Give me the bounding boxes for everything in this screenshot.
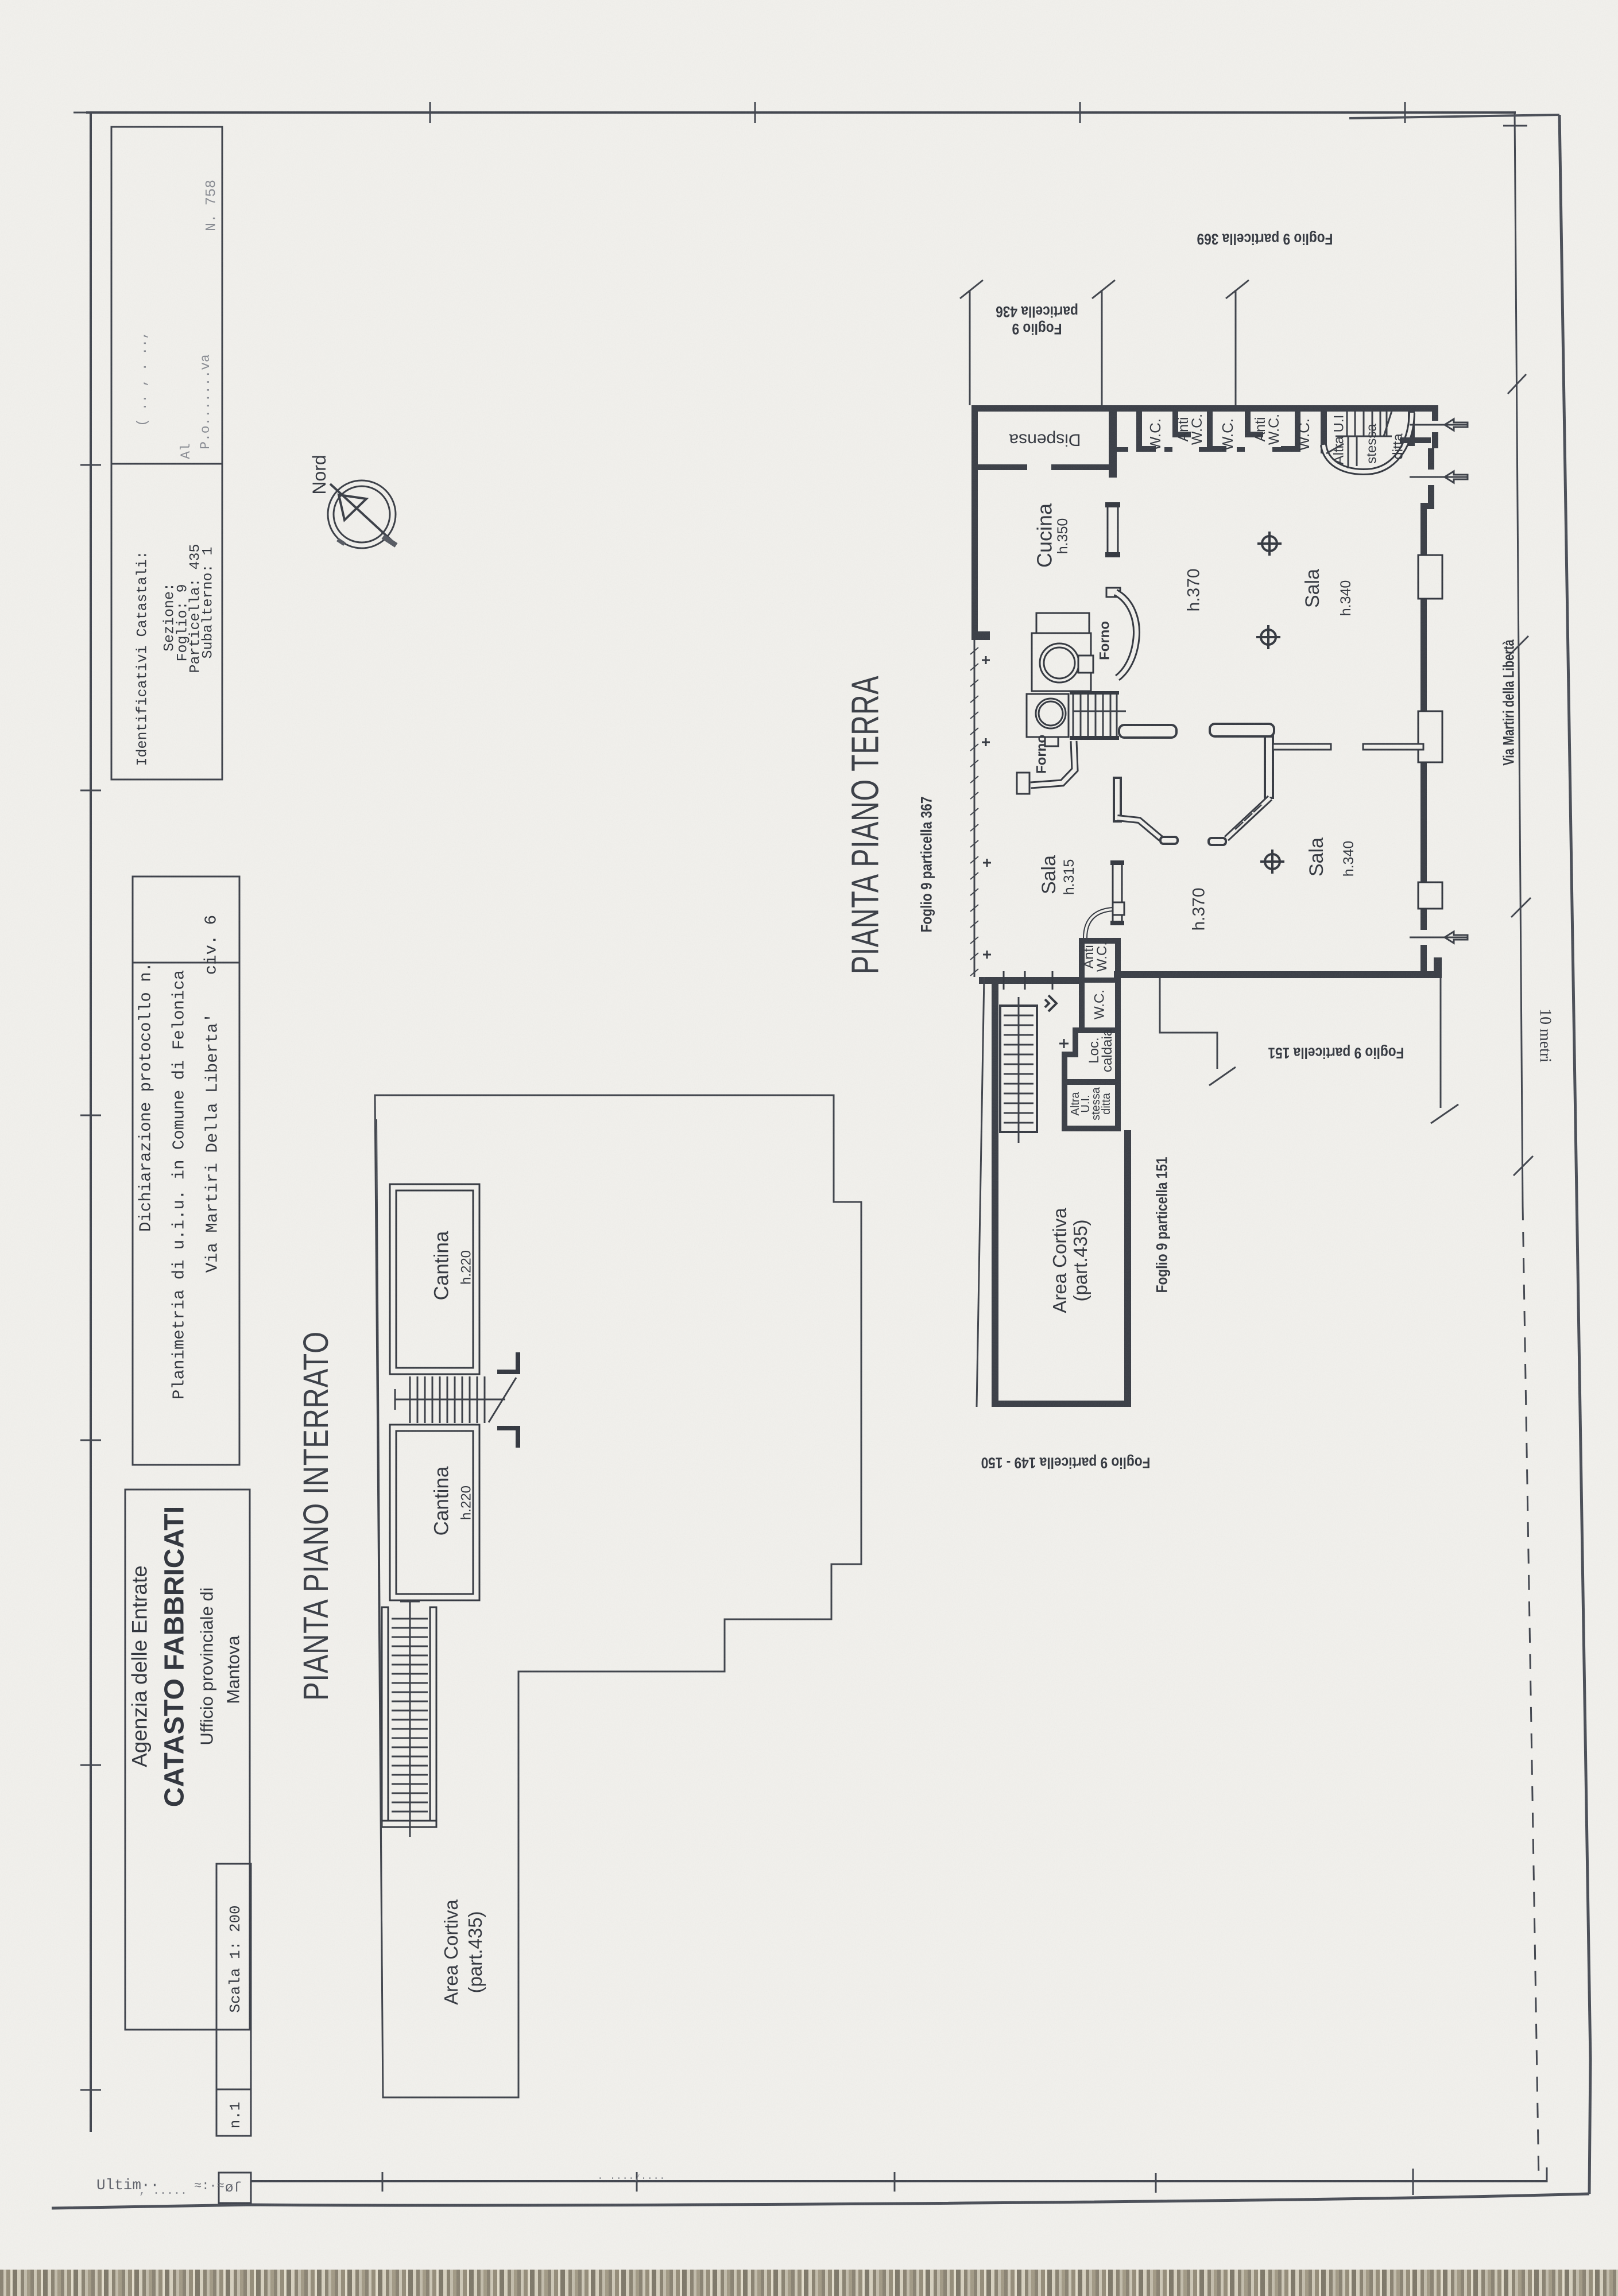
svg-text:Foglio 9particella 436: Foglio 9particella 436 [996, 303, 1078, 338]
svg-text:Loc.caldaia: Loc.caldaia [1086, 1028, 1115, 1072]
svg-text:Identificativi Catastali:: Identificativi Catastali: [134, 550, 151, 766]
svg-text:civ. 6: civ. 6 [202, 915, 221, 975]
svg-text:10 metri: 10 metri [1536, 1009, 1554, 1062]
svg-text:Altra U.I: Altra U.I [1331, 415, 1347, 465]
svg-text:Cantina: Cantina [431, 1231, 453, 1300]
svg-text:AntiW.C.: AntiW.C. [1175, 414, 1205, 445]
svg-text:h.315: h.315 [1061, 859, 1077, 895]
svg-text:stessa: stessa [1364, 424, 1380, 464]
svg-text:ditta: ditta [1391, 433, 1406, 460]
svg-text:Cantina: Cantina [431, 1466, 453, 1535]
svg-text:CATASTO FABBRICATI: CATASTO FABBRICATI [160, 1506, 190, 1807]
svg-text:Cucina: Cucina [1033, 503, 1056, 568]
svg-text:AltraU.I.stessaditta: AltraU.I.stessaditta [1069, 1087, 1113, 1120]
svg-text:n.1: n.1 [227, 2102, 244, 2129]
svg-text:øſ: øſ [225, 2181, 242, 2196]
svg-text:N. 758: N. 758 [203, 180, 220, 231]
svg-text:Via Martiri Della Liberta': Via Martiri Della Liberta' [203, 1013, 222, 1273]
svg-text:PIANTA PIANO TERRA: PIANTA PIANO TERRA [844, 676, 887, 974]
svg-text:h.370: h.370 [1185, 568, 1203, 611]
svg-text:AntiW.C.: AntiW.C. [1081, 942, 1110, 972]
svg-text:Mantova: Mantova [223, 1635, 243, 1704]
svg-text:PIANTA PIANO INTERRATO: PIANTA PIANO INTERRATO [296, 1331, 335, 1701]
svg-text:, .....: , ..... [139, 2185, 187, 2198]
svg-text:Foglio 9 particella 151: Foglio 9 particella 151 [1268, 1044, 1404, 1061]
svg-text:Sala: Sala [1306, 837, 1327, 876]
svg-text:Scala 1: 200: Scala 1: 200 [227, 1905, 244, 2012]
svg-text:Dichiarazione protocollo n.: Dichiarazione protocollo n. [137, 962, 156, 1232]
svg-text:( .. , . ..,: ( .. , . .., [135, 331, 150, 426]
svg-text:W.C.: W.C. [1092, 990, 1108, 1019]
svg-text:W.C.: W.C. [1219, 418, 1236, 451]
svg-text:Area Cortiva(part.435): Area Cortiva(part.435) [1049, 1208, 1091, 1313]
svg-text:h.370: h.370 [1190, 887, 1209, 930]
svg-text:· ····⁄····: · ····⁄···· [597, 2173, 665, 2185]
svg-text:Dispensa: Dispensa [1009, 430, 1081, 449]
svg-text:Agenzia delle Entrate: Agenzia delle Entrate [128, 1565, 152, 1767]
svg-text:Al: Al [179, 443, 193, 459]
svg-text:P.o.......va: P.o.......va [198, 354, 213, 449]
svg-text:Forno: Forno [1097, 621, 1113, 660]
svg-text:Ufficio provinciale di: Ufficio provinciale di [197, 1587, 217, 1745]
svg-text:Foglio 9 particella 151: Foglio 9 particella 151 [1153, 1157, 1171, 1293]
svg-text:h.340: h.340 [1341, 841, 1357, 877]
svg-text:h.220: h.220 [459, 1486, 474, 1520]
svg-text:Sala: Sala [1038, 855, 1060, 894]
svg-text:Sala: Sala [1302, 569, 1323, 608]
svg-text:AntiW.C.: AntiW.C. [1252, 414, 1282, 445]
svg-text:≈:·≈: ≈:·≈ [194, 2179, 224, 2193]
svg-text:Area Cortiva(part.435): Area Cortiva(part.435) [440, 1899, 486, 2005]
svg-text:h.220: h.220 [459, 1250, 474, 1285]
svg-text:W.C.: W.C. [1147, 418, 1164, 451]
svg-text:h.340: h.340 [1338, 580, 1354, 616]
svg-text:Foglio 9 particella 369: Foglio 9 particella 369 [1197, 230, 1333, 247]
svg-text:Foglio 9 particella 367: Foglio 9 particella 367 [918, 797, 935, 933]
svg-text:Planimetria di u.i.u. in Comun: Planimetria di u.i.u. in Comune di Felon… [170, 970, 189, 1399]
svg-text:Forno: Forno [1034, 735, 1050, 774]
svg-text:Foglio 9 particella 149 - 150: Foglio 9 particella 149 - 150 [981, 1454, 1151, 1471]
svg-text:Via Martiri della Libertà: Via Martiri della Libertà [1500, 639, 1518, 766]
svg-text:h.350: h.350 [1055, 518, 1071, 554]
svg-text:Nord: Nord [309, 455, 330, 494]
svg-text:W.C.: W.C. [1295, 418, 1313, 451]
svg-text:Subalterno: 1: Subalterno: 1 [200, 546, 216, 658]
